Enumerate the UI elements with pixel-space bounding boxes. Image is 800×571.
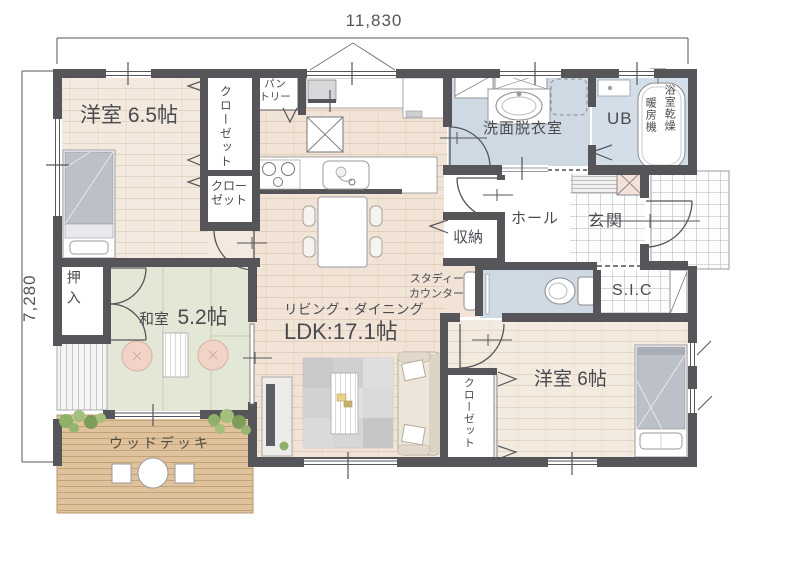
dimension-top-label: 11,830: [329, 11, 419, 31]
deck-chair: [112, 464, 131, 483]
deck-chair: [175, 464, 194, 483]
rug: [303, 358, 393, 448]
room-label-entrance: 玄関: [588, 212, 624, 231]
sic-side-closet: [670, 270, 687, 316]
floor-plan: 11,830 7,280 洋室 6.5帖 クローゼット クロー ゼット パン ト…: [0, 0, 800, 571]
room-label-bedroom6: 洋室 6帖: [534, 369, 607, 392]
entrance-step: [572, 172, 618, 193]
room-label-closet-tall: クローゼット: [218, 85, 232, 169]
room-label-closet-bedroom6: クローゼット: [461, 377, 474, 449]
porch-tiles: [651, 171, 729, 269]
room-label-unit-bath: UB: [607, 109, 633, 129]
chair: [370, 206, 382, 226]
cushion: [402, 360, 426, 381]
room-label-washroom: 洗面脱衣室: [483, 120, 563, 138]
low-table: [163, 333, 188, 377]
label-bath-dryer-col1: 浴室乾燥: [662, 84, 675, 132]
round-table: [138, 458, 168, 488]
plant: [280, 442, 289, 451]
bath-counter: [598, 80, 630, 96]
label-study-counter: スタディー カウンター: [396, 272, 464, 302]
sofa: [398, 352, 440, 455]
bed-bedroom6: [635, 345, 687, 457]
room-label-sic: S.I.C: [612, 281, 653, 300]
label-bath-dryer-col2: 暖房機: [643, 97, 656, 133]
room-label-oshiire: 押入: [65, 270, 82, 310]
room-label-wood-deck: ウッドデッキ: [109, 435, 211, 452]
washitsu-sliding-door: [250, 324, 254, 404]
room-label-hall: ホール: [511, 210, 559, 228]
room-label-pantry: パン トリー: [252, 78, 298, 103]
window: [688, 341, 711, 366]
dimension-left-label: 7,280: [20, 269, 40, 327]
refrigerator: [307, 117, 343, 152]
window: [688, 389, 712, 413]
microwave: [308, 80, 336, 101]
tv-board: [262, 377, 292, 456]
toilet-sliding-door: [486, 274, 489, 314]
room-label-closet-small: クロー ゼット: [205, 179, 253, 208]
sink: [323, 161, 369, 189]
engawa-strip: [57, 343, 107, 410]
room-label-washitsu: 和室 5.2帖: [139, 305, 228, 330]
bed-bedroom65: [63, 150, 115, 258]
cushion: [402, 424, 426, 444]
chair: [370, 237, 382, 257]
chair: [303, 206, 315, 226]
room-label-bedroom65: 洋室 6.5帖: [80, 103, 178, 128]
room-label-storage: 収納: [453, 229, 483, 247]
tv: [266, 384, 275, 446]
chair: [303, 237, 315, 257]
room-label-ldk: リビング・ダイニング LDK:17.1帖: [284, 302, 424, 346]
kitchen-island: [256, 157, 437, 194]
